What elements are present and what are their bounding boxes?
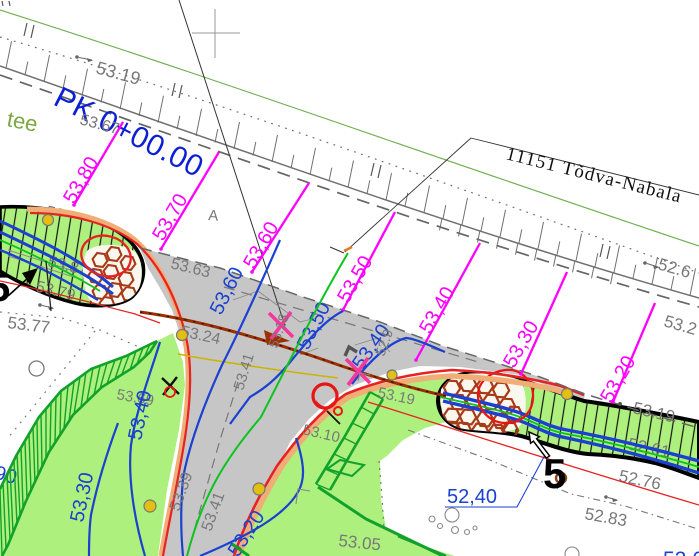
svg-text:5: 5 (0, 266, 10, 310)
svg-text:A: A (208, 207, 219, 225)
svg-text:52,40: 52,40 (447, 486, 497, 508)
svg-text:52,6: 52,6 (663, 548, 699, 556)
